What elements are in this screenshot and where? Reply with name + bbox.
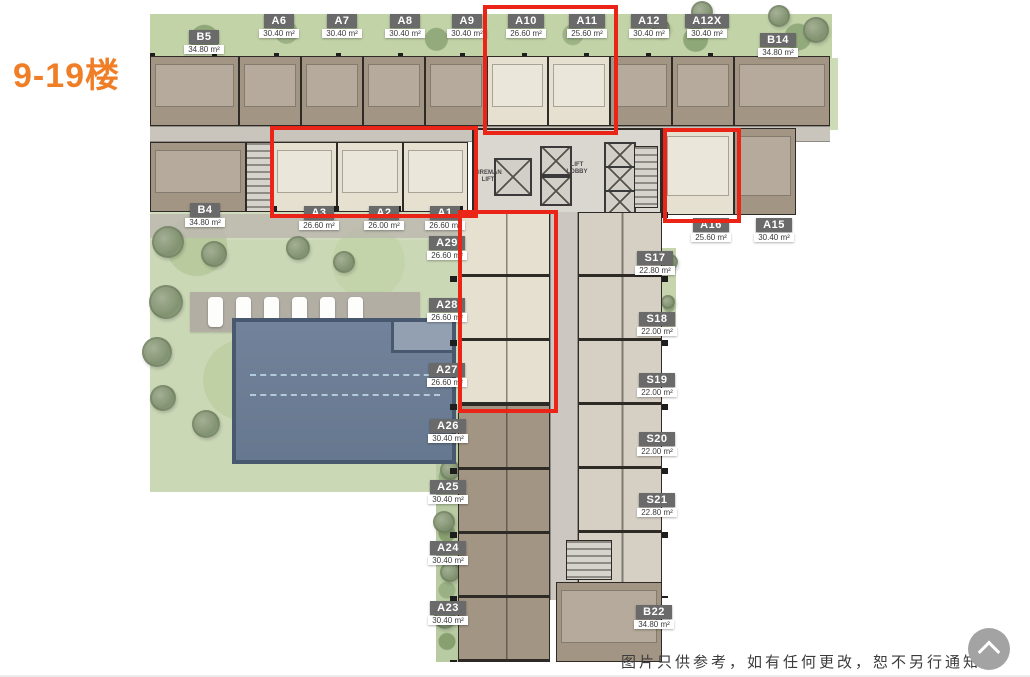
unit-area: 30.40 m² — [629, 29, 669, 38]
unit-area: 22.80 m² — [637, 508, 677, 517]
unit-label-a8: A830.40 m² — [376, 14, 434, 38]
unit-area: 30.40 m² — [428, 495, 468, 504]
unit-area: 34.80 m² — [634, 620, 674, 629]
tree-19 — [768, 5, 790, 27]
highlight-box-2 — [270, 126, 478, 218]
unit-area: 22.00 m² — [637, 388, 677, 397]
unit-id: B14 — [760, 33, 796, 47]
unit-area: 25.60 m² — [691, 233, 731, 242]
unit-area: 26.60 m² — [299, 221, 339, 230]
unit-id: A6 — [264, 14, 293, 28]
unit-id: A25 — [430, 480, 466, 494]
tree-1 — [152, 226, 184, 258]
unit-id: B22 — [636, 605, 672, 619]
lift-shaft-3 — [540, 176, 572, 206]
unit-label-a6: A630.40 m² — [250, 14, 308, 38]
unit-area: 34.80 m² — [758, 48, 798, 57]
stairs-wing — [566, 540, 612, 580]
tree-6 — [142, 337, 172, 367]
unit-label-s18: S1822.00 m² — [628, 312, 686, 336]
lift-shaft-5 — [604, 166, 636, 192]
unit-label-s21: S2122.80 m² — [628, 493, 686, 517]
unit-id: A12X — [685, 14, 729, 28]
disclaimer-text: 图片只供参考，如有任何更改，恕不另行通知 — [621, 651, 981, 672]
unit-label-b14: B1434.80 m² — [749, 33, 807, 57]
upper-unit-cell-8 — [610, 56, 672, 126]
unit-label-b22: B2234.80 m² — [625, 605, 683, 629]
unit-label-a23: A2330.40 m² — [419, 601, 477, 625]
unit-area: 22.00 m² — [637, 327, 677, 336]
unit-area: 22.80 m² — [635, 266, 675, 275]
back-to-top-button[interactable] — [968, 628, 1010, 670]
floorplan-page: 9-19楼 FIREMAN LIFT LIFT LOBBY — [0, 0, 1030, 677]
unit-label-a26: A2630.40 m² — [419, 419, 477, 443]
unit-area: 34.80 m² — [185, 218, 225, 227]
lounge-chair-1 — [208, 297, 223, 327]
lower-unit-cell-2 — [246, 142, 272, 212]
highlight-box-3 — [663, 128, 741, 223]
upper-unit-cell-3 — [301, 56, 363, 126]
unit-id: S21 — [639, 493, 674, 507]
page-title: 9-19楼 — [13, 48, 120, 97]
pool-step — [391, 322, 452, 353]
unit-area: 30.40 m² — [754, 233, 794, 242]
pool-lane-line — [250, 374, 440, 376]
unit-label-a7: A730.40 m² — [313, 14, 371, 38]
unit-label-a12: A1230.40 m² — [620, 14, 678, 38]
lift-shaft-6 — [604, 190, 636, 214]
unit-id: B4 — [190, 203, 219, 217]
upper-unit-cell-9 — [672, 56, 734, 126]
unit-area: 30.40 m² — [447, 29, 487, 38]
tree-2 — [201, 241, 227, 267]
highlight-box-4 — [458, 210, 558, 413]
unit-label-a15: A1530.40 m² — [745, 218, 803, 242]
unit-label-a25: A2530.40 m² — [419, 480, 477, 504]
unit-area: 30.40 m² — [428, 616, 468, 625]
stairs-core — [634, 146, 658, 208]
lower-unit-cell-1 — [150, 142, 246, 212]
upper-unit-cell-5 — [425, 56, 487, 126]
unit-area: 30.40 m² — [428, 434, 468, 443]
unit-id: B5 — [189, 30, 218, 44]
unit-id: S20 — [639, 432, 674, 446]
unit-id: A9 — [452, 14, 481, 28]
lift-lobby-label: LIFT LOBBY — [560, 162, 594, 176]
unit-id: A12 — [631, 14, 667, 28]
unit-id: S18 — [639, 312, 674, 326]
pool-lane-line — [250, 394, 440, 396]
unit-id: S17 — [637, 251, 672, 265]
upper-unit-cell-4 — [363, 56, 425, 126]
unit-a15-shape — [734, 128, 796, 215]
upper-unit-cell-10 — [734, 56, 830, 126]
unit-area: 22.00 m² — [637, 447, 677, 456]
unit-area: 26.00 m² — [364, 221, 404, 230]
unit-id: A7 — [327, 14, 356, 28]
unit-label-s17: S1722.80 m² — [626, 251, 684, 275]
unit-label-a12x: A12X30.40 m² — [678, 14, 736, 38]
unit-area: 30.40 m² — [687, 29, 727, 38]
tree-3 — [286, 236, 310, 260]
tree-7 — [150, 385, 176, 411]
tree-8 — [192, 410, 220, 438]
unit-label-s19: S1922.00 m² — [628, 373, 686, 397]
unit-id: S19 — [639, 373, 674, 387]
unit-area: 30.40 m² — [259, 29, 299, 38]
upper-unit-cell-1 — [150, 56, 239, 126]
tree-5 — [149, 285, 183, 319]
unit-id: A8 — [390, 14, 419, 28]
unit-area: 34.80 m² — [184, 45, 224, 54]
unit-area: 30.40 m² — [322, 29, 362, 38]
unit-area: 30.40 m² — [385, 29, 425, 38]
unit-id: A23 — [430, 601, 466, 615]
lift-shaft-4 — [604, 142, 636, 168]
tree-4 — [333, 251, 355, 273]
unit-id: A26 — [430, 419, 466, 433]
unit-label-s20: S2022.00 m² — [628, 432, 686, 456]
upper-unit-cell-2 — [239, 56, 301, 126]
unit-label-b4: B434.80 m² — [176, 203, 234, 227]
unit-label-a24: A2430.40 m² — [419, 541, 477, 565]
unit-id: A24 — [430, 541, 466, 555]
unit-id: A15 — [756, 218, 792, 232]
unit-area: 30.40 m² — [428, 556, 468, 565]
chevron-up-icon — [978, 641, 1001, 664]
highlight-box-1 — [483, 5, 618, 135]
unit-label-b5: B534.80 m² — [175, 30, 233, 54]
